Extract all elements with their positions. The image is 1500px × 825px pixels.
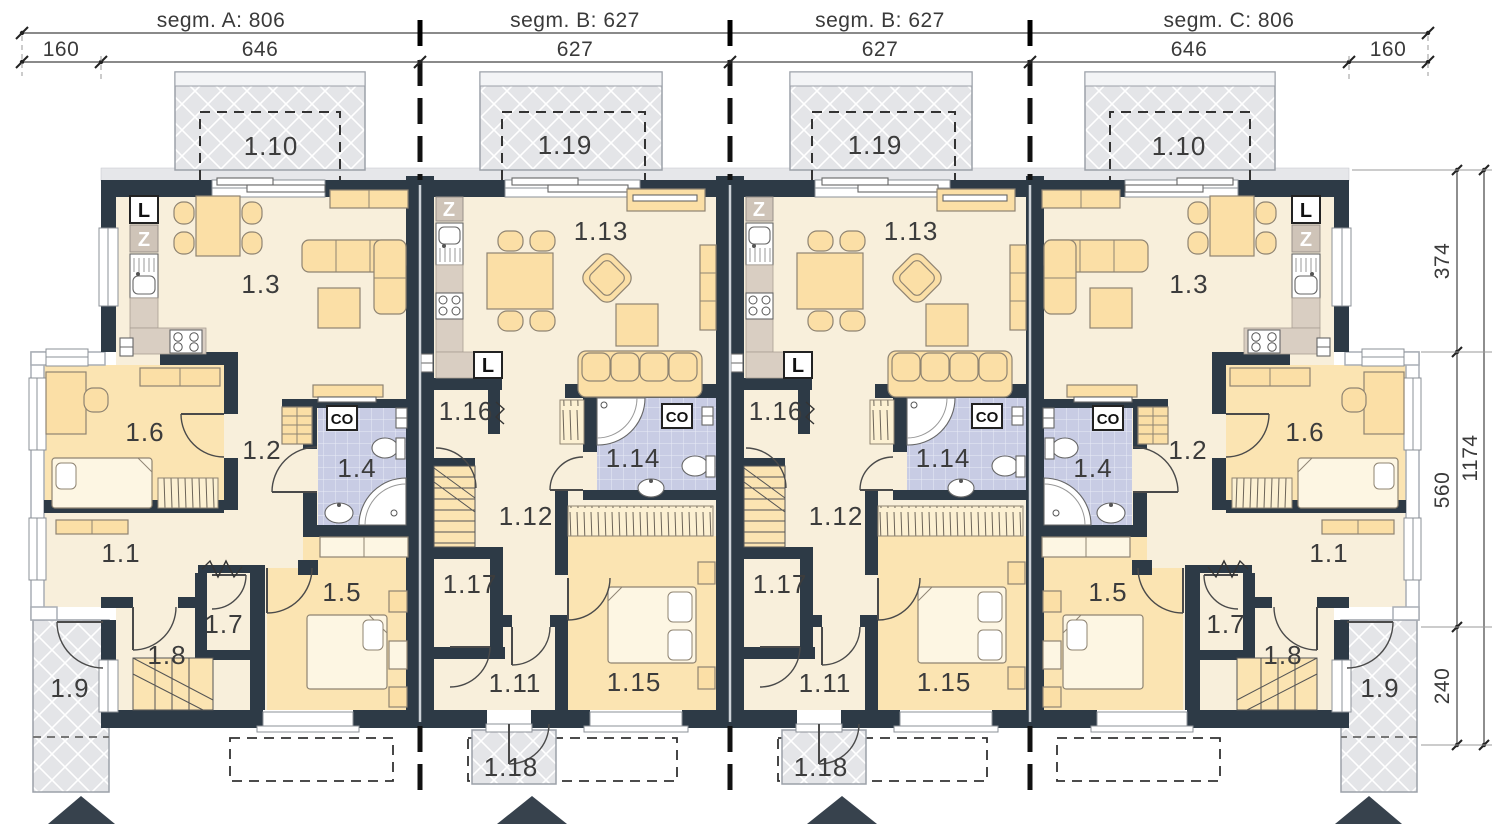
label-b-room: 1.16: [439, 396, 494, 426]
label-a-living: 1.3: [241, 269, 280, 299]
label-a-porch: 1.9: [50, 673, 89, 703]
label-c-stairs: 1.8: [1263, 640, 1302, 670]
label-c-room: 1.6: [1285, 417, 1324, 447]
label-b-hall: 1.12: [499, 501, 554, 531]
label-b2-terrace: 1.19: [848, 130, 903, 160]
dim-160-right: 160: [1370, 38, 1407, 61]
label-b-living: 1.13: [574, 216, 629, 246]
label-a-hall: 1.1: [101, 538, 140, 568]
mark-a-boiler: CO: [331, 411, 354, 428]
mark-b-boiler: CO: [666, 409, 689, 426]
mark-b2-pantry: Z: [753, 199, 765, 221]
label-b2-bathroom: 1.14: [916, 443, 971, 473]
label-a-closet: 1.7: [204, 609, 243, 639]
floor-plan: segm. A: 806 segm. B: 627 segm. B: 627 s…: [0, 0, 1500, 825]
label-c-corridor: 1.2: [1168, 435, 1207, 465]
dim-627-b: 627: [557, 38, 594, 61]
segment-b-geometry: [420, 72, 730, 824]
label-a-corridor: 1.2: [242, 435, 281, 465]
dim-374: 374: [1431, 243, 1454, 280]
mark-a-fridge: L: [138, 200, 150, 222]
mark-b-fridge: L: [482, 355, 494, 377]
label-b2-porch: 1.18: [794, 752, 849, 782]
segment-a-geometry: [29, 72, 420, 824]
label-a-terrace: 1.10: [244, 131, 299, 161]
label-a-bedroom: 1.5: [322, 577, 361, 607]
mark-c-fridge: L: [1300, 200, 1312, 222]
label-b-entry: 1.11: [489, 668, 542, 698]
dim-240: 240: [1431, 668, 1454, 705]
dim-160-left: 160: [43, 38, 80, 61]
dim-646-a: 646: [242, 38, 279, 61]
segment-b2-geometry: [730, 72, 1040, 824]
label-b2-bedroom: 1.15: [917, 667, 972, 697]
mark-b-pantry: Z: [443, 199, 455, 221]
label-b2-living: 1.13: [884, 216, 939, 246]
mark-a-pantry: Z: [138, 229, 150, 251]
label-c-porch: 1.9: [1360, 673, 1399, 703]
dim-560: 560: [1431, 472, 1454, 509]
label-b-terrace: 1.19: [538, 130, 593, 160]
segment-c-geometry: [1030, 72, 1421, 824]
segment-b2-title: segm. B: 627: [815, 9, 945, 32]
label-c-bedroom: 1.5: [1088, 577, 1127, 607]
label-b-storage: 1.17: [443, 569, 498, 599]
label-b2-storage: 1.17: [753, 569, 808, 599]
segment-a-title: segm. A: 806: [157, 9, 286, 32]
label-b2-room: 1.16: [749, 396, 804, 426]
mark-c-boiler: CO: [1097, 411, 1120, 428]
label-c-bathroom: 1.4: [1073, 453, 1112, 483]
label-b2-entry: 1.11: [799, 668, 852, 698]
segment-c-title: segm. C: 806: [1164, 9, 1295, 32]
floor-plan-canvas: segm. A: 806 segm. B: 627 segm. B: 627 s…: [0, 0, 1500, 825]
label-a-stairs: 1.8: [147, 640, 186, 670]
mark-b2-fridge: L: [792, 355, 804, 377]
label-b-bathroom: 1.14: [606, 443, 661, 473]
mark-c-pantry: Z: [1300, 229, 1312, 251]
label-a-bathroom: 1.4: [337, 453, 376, 483]
label-c-hall: 1.1: [1309, 538, 1348, 568]
label-c-living: 1.3: [1169, 269, 1208, 299]
segment-b-title: segm. B: 627: [510, 9, 640, 32]
label-c-closet: 1.7: [1206, 609, 1245, 639]
label-c-terrace: 1.10: [1152, 131, 1207, 161]
label-a-room: 1.6: [125, 417, 164, 447]
mark-b2-boiler: CO: [976, 409, 999, 426]
dim-627-b2: 627: [862, 38, 899, 61]
label-b-porch: 1.18: [484, 752, 539, 782]
dim-1174: 1174: [1459, 434, 1482, 481]
label-b2-hall: 1.12: [809, 501, 864, 531]
dim-646-c: 646: [1171, 38, 1208, 61]
label-b-bedroom: 1.15: [607, 667, 662, 697]
